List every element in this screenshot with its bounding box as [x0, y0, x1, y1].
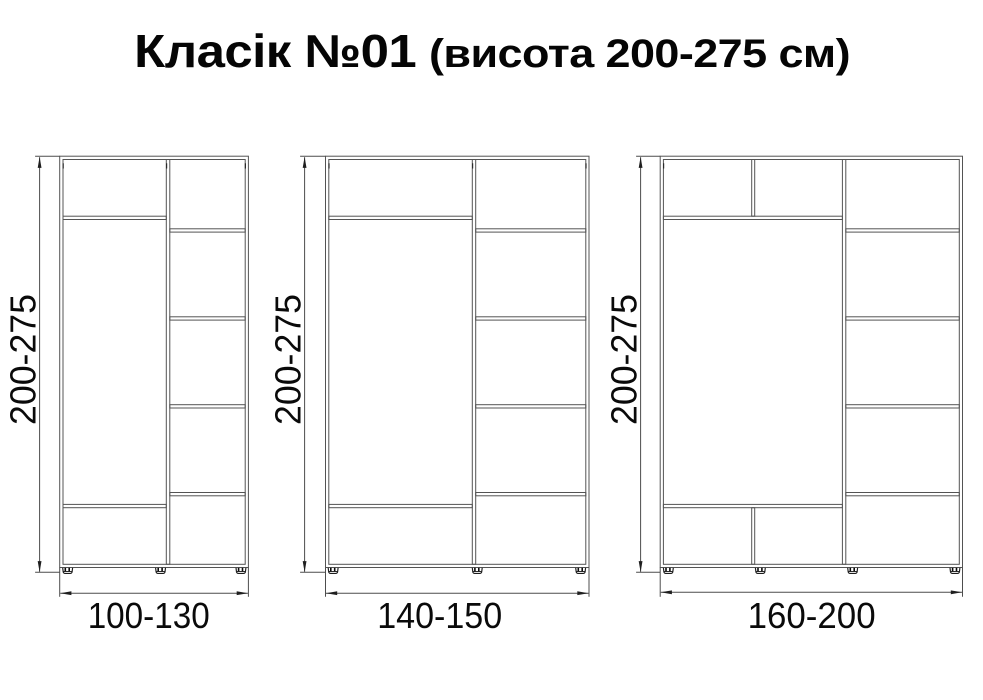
svg-text:Класік №01: Класік №01 — [134, 25, 416, 77]
svg-text:100-130: 100-130 — [88, 595, 210, 636]
svg-text:(висота 200-275 см): (висота 200-275 см) — [429, 32, 850, 76]
svg-text:140-150: 140-150 — [377, 595, 502, 636]
svg-text:200-275: 200-275 — [604, 294, 645, 425]
svg-text:200-275: 200-275 — [3, 294, 44, 425]
svg-text:160-200: 160-200 — [748, 595, 876, 636]
svg-text:200-275: 200-275 — [268, 294, 309, 425]
